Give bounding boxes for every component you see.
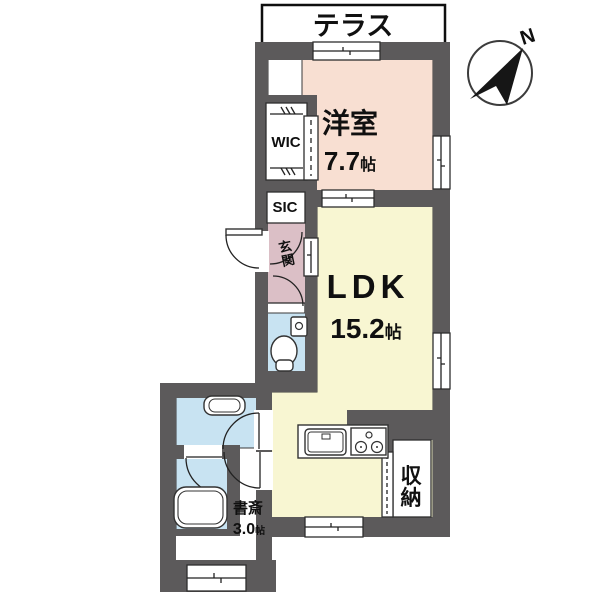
entrance-door (226, 229, 269, 272)
window-terrace (313, 42, 380, 60)
compass-north-icon: N (468, 25, 538, 105)
wall-segment (305, 207, 317, 392)
kitchen-sink-icon (305, 429, 346, 455)
compass-n-label: N (517, 25, 538, 50)
stove-icon (351, 428, 386, 455)
ldk-label: LDK (327, 268, 410, 305)
wall-segment (255, 42, 268, 385)
western-room-label: 洋室 (322, 107, 378, 139)
window-western-right (433, 136, 450, 189)
wic-door (304, 116, 318, 180)
bathtub-icon (174, 487, 227, 528)
sic-label: SIC (272, 199, 297, 216)
storage-label: 収 納 (401, 465, 423, 510)
western-ldk-door (322, 190, 374, 207)
window-ldk-right (433, 333, 450, 389)
wic-label: WIC (271, 134, 300, 151)
svg-text:収: 収 (401, 465, 423, 488)
study-label: 書斎 (233, 499, 263, 517)
western-room-corner-duct (268, 58, 302, 98)
entrance-ldk-door (304, 238, 318, 276)
window-ldk-bottom (305, 517, 363, 537)
floor-plan: テラス N (0, 0, 600, 600)
terrace-label: テラス (313, 11, 393, 41)
wall-segment (433, 42, 450, 537)
washbasin-icon (204, 396, 245, 415)
wall-segment (176, 529, 240, 536)
kitchen-counter (298, 425, 388, 458)
floor-plan-page: テラス N (0, 0, 600, 600)
svg-text:納: 納 (401, 486, 422, 510)
window-study-bottom (187, 565, 246, 591)
